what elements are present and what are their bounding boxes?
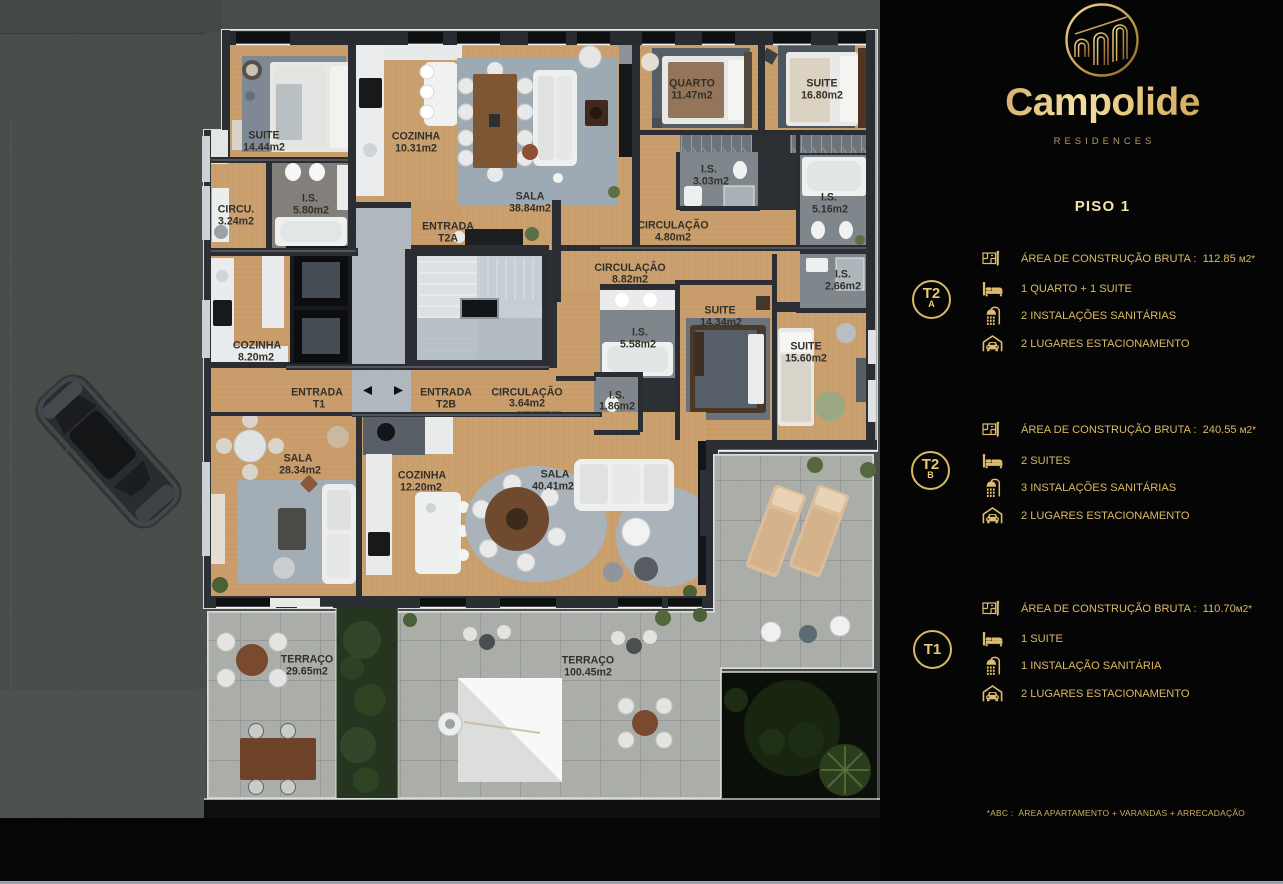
svg-text:ENTRADA: ENTRADA — [422, 221, 474, 233]
svg-text:SUITE: SUITE — [248, 130, 279, 142]
svg-text:SUITE: SUITE — [704, 305, 735, 317]
svg-text:5.58m2: 5.58m2 — [620, 339, 656, 351]
svg-text:3.03m2: 3.03m2 — [693, 176, 729, 188]
svg-text:SALA: SALA — [516, 191, 545, 203]
svg-text:28.34m2: 28.34m2 — [279, 465, 321, 477]
svg-text:I.S.: I.S. — [632, 327, 648, 339]
svg-text:15.60m2: 15.60m2 — [785, 353, 827, 365]
svg-text:CIRCULAÇÃO: CIRCULAÇÃO — [637, 219, 708, 232]
svg-text:3.64m2: 3.64m2 — [509, 398, 545, 410]
svg-text:QUARTO: QUARTO — [669, 78, 715, 90]
svg-text:T2B: T2B — [436, 399, 456, 411]
svg-text:ENTRADA: ENTRADA — [291, 387, 343, 399]
svg-text:TERRAÇO: TERRAÇO — [562, 655, 614, 667]
svg-text:5.16m2: 5.16m2 — [812, 204, 848, 216]
svg-text:TERRAÇO: TERRAÇO — [281, 654, 333, 666]
svg-text:14.34m2: 14.34m2 — [700, 317, 742, 329]
svg-text:100.45m2: 100.45m2 — [564, 667, 612, 679]
svg-text:SUITE: SUITE — [790, 341, 821, 353]
svg-text:1.86m2: 1.86m2 — [599, 401, 635, 413]
svg-text:3.24m2: 3.24m2 — [218, 216, 254, 228]
svg-text:ENTRADA: ENTRADA — [420, 387, 472, 399]
svg-text:CIRCU.: CIRCU. — [218, 204, 255, 216]
svg-text:12.20m2: 12.20m2 — [400, 482, 442, 494]
svg-text:COZINHA: COZINHA — [233, 340, 282, 352]
svg-text:29.65m2: 29.65m2 — [286, 666, 328, 678]
svg-text:11.47m2: 11.47m2 — [671, 90, 712, 102]
svg-text:COZINHA: COZINHA — [398, 470, 447, 482]
svg-text:SALA: SALA — [284, 453, 313, 465]
svg-text:T2A: T2A — [438, 233, 458, 245]
svg-text:8.20m2: 8.20m2 — [238, 352, 274, 364]
svg-text:COZINHA: COZINHA — [392, 131, 441, 143]
svg-text:SALA: SALA — [541, 469, 570, 481]
svg-text:T1: T1 — [313, 399, 325, 411]
svg-text:I.S.: I.S. — [701, 164, 717, 176]
svg-text:SUITE: SUITE — [806, 78, 837, 90]
svg-text:10.31m2: 10.31m2 — [395, 143, 437, 155]
svg-text:I.S.: I.S. — [835, 269, 851, 281]
svg-text:4.80m2: 4.80m2 — [655, 232, 691, 244]
svg-text:5.80m2: 5.80m2 — [293, 205, 329, 217]
svg-text:I.S.: I.S. — [821, 192, 837, 204]
svg-text:CIRCULAÇÃO: CIRCULAÇÃO — [594, 261, 665, 274]
svg-text:8.82m2: 8.82m2 — [612, 274, 648, 286]
svg-text:2.66m2: 2.66m2 — [825, 281, 861, 293]
svg-text:14.44m2: 14.44m2 — [243, 142, 285, 154]
svg-text:I.S.: I.S. — [302, 193, 318, 205]
svg-text:40.41m2: 40.41m2 — [532, 481, 574, 493]
svg-text:38.84m2: 38.84m2 — [509, 203, 551, 215]
svg-text:16.80m2: 16.80m2 — [801, 90, 843, 102]
